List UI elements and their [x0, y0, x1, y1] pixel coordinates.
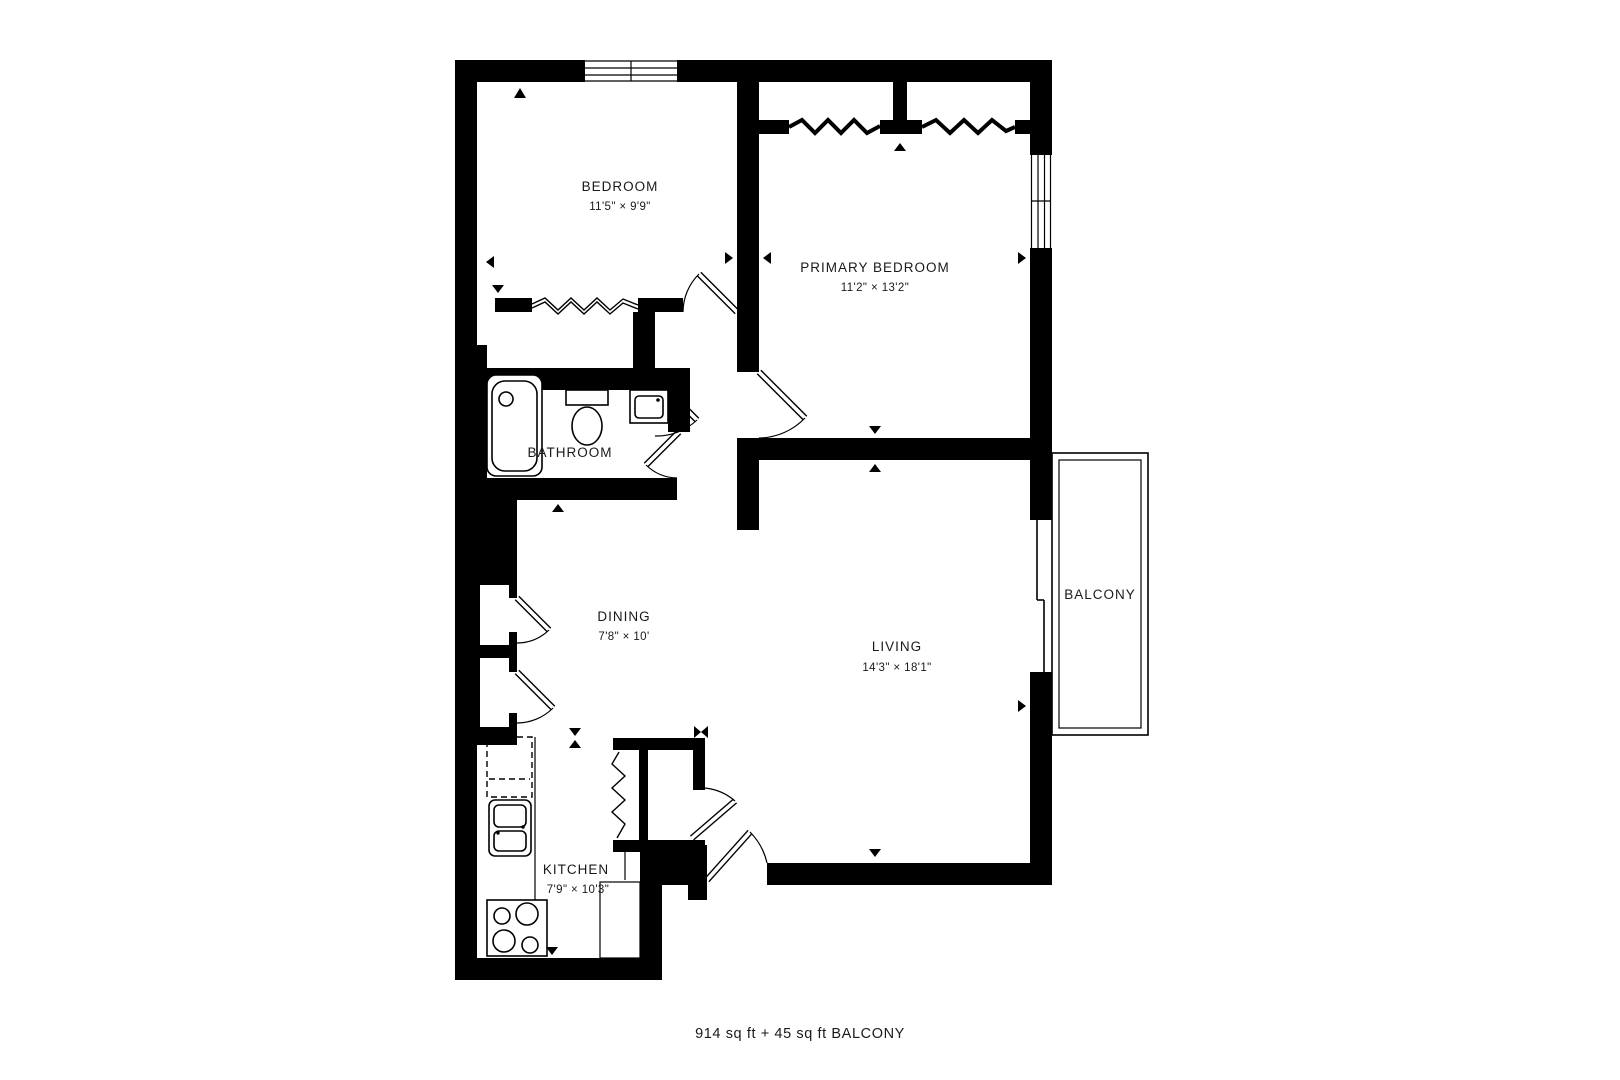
kitchen-sink-fixture	[489, 800, 531, 856]
area-summary: 914 sq ft + 45 sq ft BALCONY	[695, 1026, 905, 1042]
room-label-balcony: BALCONY	[1064, 587, 1136, 602]
entry-door	[705, 830, 767, 881]
room-dims-bedroom: 11'5" × 9'9"	[589, 201, 651, 213]
room-label-bedroom: BEDROOM	[582, 179, 659, 194]
toilet-fixture	[566, 390, 608, 445]
bathroom-sink-fixture	[630, 390, 668, 423]
entry-closet-door	[690, 788, 736, 840]
floor-plan-drawing: BEDROOM 11'5" × 9'9" PRIMARY BEDROOM 11'…	[0, 0, 1620, 1080]
room-label-primary-bedroom: PRIMARY BEDROOM	[800, 260, 950, 275]
room-label-bathroom: BATHROOM	[528, 445, 613, 460]
room-dims-living: 14'3" × 18'1"	[862, 662, 931, 674]
room-label-kitchen: KITCHEN	[543, 862, 609, 877]
bathroom-door	[644, 430, 681, 478]
bedroom-door	[683, 272, 739, 314]
primary-bedroom-door	[757, 370, 807, 438]
top-window-icon	[585, 60, 677, 82]
right-window-icon	[1030, 155, 1052, 248]
room-dims-dining: 7'8" × 10'	[598, 631, 649, 643]
room-dims-primary-bedroom: 11'2" × 13'2"	[841, 282, 909, 294]
refrigerator-fixture	[487, 737, 532, 797]
floor-plan-page: BEDROOM 11'5" × 9'9" PRIMARY BEDROOM 11'…	[0, 0, 1620, 1080]
dining-closet-door-upper	[515, 596, 551, 643]
bedroom-closet-rod-zigzag	[532, 298, 638, 314]
room-dims-kitchen: 7'9" × 10'3"	[547, 884, 609, 896]
room-label-living: LIVING	[872, 639, 922, 654]
stove-fixture	[487, 900, 547, 956]
sliding-door-icon	[1037, 520, 1044, 672]
bathtub-fixture	[487, 375, 542, 476]
walls	[455, 60, 1052, 980]
entry-closet-rod-zigzag	[612, 752, 625, 838]
dining-closet-door-lower	[515, 670, 555, 723]
room-label-dining: DINING	[597, 609, 650, 624]
